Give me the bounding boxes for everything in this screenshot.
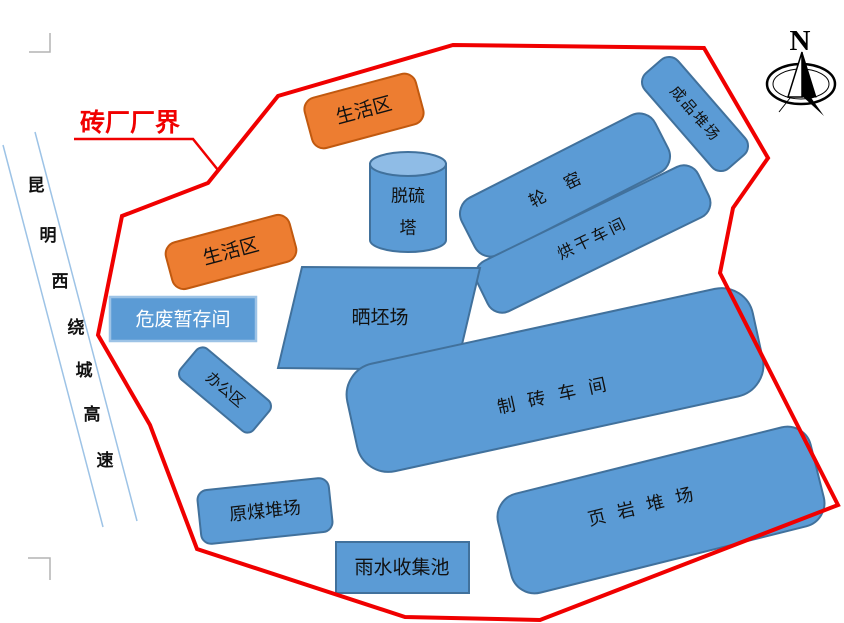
highway-name-char: 昆 [28,176,45,195]
desulfurization-tower: 脱硫 塔 [370,152,446,252]
page-corner-mark-bottom-left [28,558,50,580]
page-corner-mark-top-left [29,33,50,52]
boundary-label-leader-line [74,139,218,170]
highway-name-char: 明 [40,226,57,245]
highway-name-char: 城 [76,361,93,380]
rainwater-pool: 雨水收集池 [336,542,469,593]
site-plan-diagram: 昆 明 西 绕 城 高 速 生活区 生活区 脱硫 塔 轮窑 烘干车间 成品堆场 [0,0,844,623]
compass-north-label: N [790,25,811,57]
boundary-label: 砖厂厂界 [80,108,180,137]
site-plan-canvas: 昆 明 西 绕 城 高 速 生活区 生活区 脱硫 塔 轮窑 烘干车间 成品堆场 [0,0,844,623]
raw-coal-yard: 原煤堆场 [197,477,334,545]
desulfurization-tower-label-line1: 脱硫 [391,187,425,206]
hazardous-waste-storage-label: 危废暂存间 [135,309,230,331]
highway-name-char: 高 [84,404,101,424]
hazardous-waste-storage: 危废暂存间 [110,297,256,341]
office-area: 办公区 [176,344,274,436]
living-area-left: 生活区 [163,212,299,291]
desulfurization-tower-top [370,152,446,176]
highway-name-char: 绕 [68,317,85,337]
rainwater-pool-label: 雨水收集池 [354,557,449,579]
compass-needle-west-half [788,52,802,97]
desulfurization-tower-label-line2: 塔 [400,219,417,238]
compass: N [767,25,835,116]
highway-name-char: 西 [52,272,69,291]
compass-needle-east-half [802,52,816,97]
brick-drying-field-label: 晒坯场 [351,307,408,329]
highway-name-char: 速 [97,450,114,470]
desulfurization-tower-body [370,164,446,252]
